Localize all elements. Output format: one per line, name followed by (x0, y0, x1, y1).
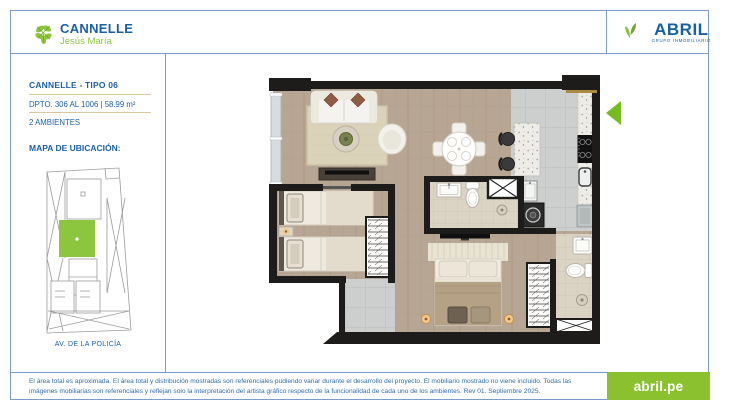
toilet (566, 264, 592, 278)
shower-head (577, 295, 588, 306)
map-heading: MAPA DE UBICACIÓN: (29, 143, 121, 153)
bathroom-sink (437, 183, 461, 197)
header-divider (11, 53, 708, 54)
shower-head (497, 205, 507, 215)
tv (440, 234, 490, 239)
laundry-sink (523, 181, 537, 201)
website-button[interactable]: abril.pe (607, 372, 710, 400)
pillow (469, 261, 497, 277)
sofa (311, 91, 377, 123)
toilet (466, 182, 479, 208)
project-location: Jesús María (60, 37, 133, 47)
unit-title: CANNELLE - TIPO 06 (29, 80, 118, 90)
double-bed (435, 259, 501, 325)
abril-logo: ABRIL GRUPO INMOBILIARIO (623, 21, 723, 45)
tv-console (319, 168, 375, 180)
developer-name: ABRIL (640, 21, 723, 38)
entry-door (566, 90, 597, 93)
washing-machine (522, 203, 544, 227)
tan-divider-2 (29, 112, 151, 113)
bar-stool (500, 158, 515, 171)
stainless-counter (577, 205, 593, 227)
location-map (31, 163, 143, 339)
single-bed (279, 237, 373, 271)
disclaimer-text: El área total es aproximada. El área tot… (29, 377, 597, 396)
unit-info: DPTO. 306 AL 1006 | 58.99 m² (29, 100, 135, 109)
map-street-label: AV. DE LA POLICÍA (11, 341, 165, 348)
duct-shaft (488, 178, 518, 198)
sidebar-divider (165, 53, 166, 372)
header-right-divider (606, 11, 607, 53)
kitchen-sink (579, 168, 591, 186)
cushion (471, 307, 490, 323)
shower-floor (556, 319, 596, 332)
tv (325, 171, 369, 175)
flyer-frame: CANNELLE Jesús María ABRIL GRUPO INMOBIL… (10, 10, 709, 400)
highlighted-unit (59, 220, 95, 257)
bar-stool (500, 133, 515, 146)
project-name: CANNELLE (60, 22, 133, 35)
abril-leaf-icon (623, 21, 637, 39)
pillow (439, 261, 467, 277)
cushion (448, 307, 467, 323)
cannelle-flower-icon (33, 22, 55, 46)
single-bed (279, 191, 373, 225)
closet (527, 263, 551, 327)
sliding-door (323, 186, 351, 189)
hall-floor (342, 279, 395, 332)
tan-divider-1 (29, 94, 151, 95)
kitchen-island (514, 123, 540, 176)
closet (366, 217, 391, 277)
unit-rooms: 2 AMBIENTES (29, 118, 80, 127)
cooktop (578, 135, 593, 163)
entry-arrow-icon (606, 101, 621, 125)
floor-plan (265, 67, 625, 355)
nightstand (279, 227, 293, 236)
cannelle-logo: CANNELLE Jesús María (33, 22, 133, 47)
window (270, 93, 282, 186)
footer-divider (11, 372, 708, 373)
bathroom-sink (573, 237, 592, 254)
developer-tagline: GRUPO INMOBILIARIO (652, 39, 712, 43)
